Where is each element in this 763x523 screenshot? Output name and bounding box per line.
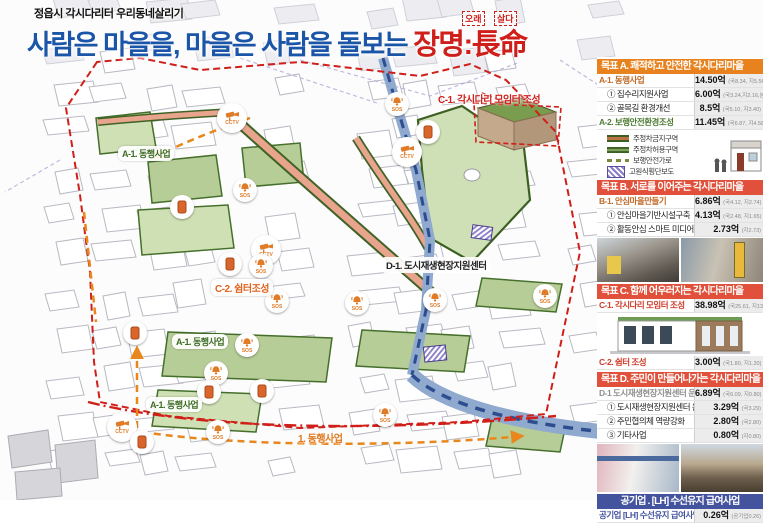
budget-row: A-1. 동행사업 14.50억 (국8.34, 지5.56) [597,74,763,88]
budget-row: ② 활동안심 스마트 미디어월 2.73억 (지2.73) [597,223,763,237]
parking-legend: 주정차금지구역 주정차허용구역 보행안전가로 고원식횡단보도 [607,132,763,178]
map-label: C-2. 쉼터조성 [211,279,273,296]
budget-row: ② 골목길 환경개선 8.5억 (국5.10, 지3.40) [597,102,763,116]
budget-row: ① 집수리지원사업 6.00억 (국3.24,지2.16,본0.60) [597,88,763,102]
map-label: A-1. 동행사업 [146,397,202,412]
budget-row: ① 안심마을기반시설구축 4.13억 (국2.48, 지1.65) [597,209,763,223]
goal-a-header: 목표 A. 쾌적하고 안전한 각시다리마을 [597,59,763,74]
sos-icon: SOS [423,288,447,312]
door-icon [170,195,194,219]
door-icon [250,379,274,403]
poster: 정읍시 각시다리터 우리동네살리기 사람은 마을을, 마을은 사람을 돌보는 장… [0,0,763,500]
annotation-orae: 오래 [462,11,485,26]
sos-icon: SOS [345,291,369,315]
meeting-place-render [597,313,763,356]
street-photo [597,238,679,282]
sos-icon: SOS [373,403,397,427]
budget-row: A-2. 보행안전환경조성 11.45억 (국6.87, 지4.58) [597,116,763,130]
map-label: A-1. 동행사업 [118,146,174,161]
cctv-icon: CCTV [392,137,422,167]
sos-icon: SOS [233,178,257,202]
door-icon [130,430,154,454]
lh-header: 공기업 . [LH] 수선유지 급여사업 [597,494,763,509]
budget-row: 공기업 [LH] 수선유지 급여사업 0.26억 (공기업0.26) [597,509,763,523]
budget-row: D-1 도시재생현장지원센터 운영 6.89억 (국6.09, 지0.80) [597,387,763,401]
goal-b-header: 목표 B. 서로를 이어주는 각시다리마을 [597,180,763,195]
budget-row: ② 주민협의체 역량강화 2.80억 (국2.80) [597,415,763,429]
sos-icon: SOS [385,92,409,116]
alley-photo [681,238,763,282]
goal-c-header: 목표 C. 함께 어우러지는 각시다리마을 [597,284,763,299]
annotation-salda: 살다 [494,11,517,26]
map-label: C-1. 각시다리 모임터 조성 [438,91,540,106]
house-illustration [707,133,763,177]
sos-icon: SOS [206,420,230,444]
title-highlight: 장명:長命 [413,29,527,61]
safe-walkway-swatch [607,159,629,162]
page-title: 사람은 마을을, 마을은 사람을 돌보는 장명:長命 [27,21,527,63]
sos-icon: SOS [249,254,273,278]
center-building-photo [597,444,679,492]
budget-row: C-1. 각시다리 모임터 조성 38.98억 (국25.61, 지13.37) [597,299,763,313]
legend-item: 주정차금지구역 [607,133,707,144]
sos-icon: SOS [533,284,557,308]
goal-b-photos [597,238,763,282]
map-label: 1. 동행사업 [298,430,342,445]
sidebar: 목표 A. 쾌적하고 안전한 각시다리마을 A-1. 동행사업 14.50억 (… [597,57,763,500]
cctv-icon: CCTV [217,103,247,133]
parking-allowed-swatch [607,147,629,153]
document-subtitle: 정읍시 각시다리터 우리동네살리기 [34,5,183,21]
map-label: A-1. 동행사업 [172,334,228,349]
goal-d-photos [597,444,763,492]
legend-item: 고원식횡단보도 [607,166,707,177]
map-label: D-1. 도시재생현장지원센터 [383,257,490,273]
door-icon [416,120,440,144]
budget-row: ③ 기타사업 0.80억 (지0.80) [597,429,763,443]
door-icon [123,321,147,345]
park-structure [464,169,480,181]
door-icon [218,252,242,276]
legend-item: 보행안전가로 [607,155,707,166]
budget-row: C-2. 쉼터 조성 3.00억 (국1.80, 지1.20) [597,356,763,370]
budget-row: ① 도시재생현장지원센터 운영 3.29억 (국3.29) [597,401,763,415]
crosswalk-swatch [607,166,625,178]
sos-icon: SOS [235,333,259,357]
goal-d-header: 목표 D. 주민이 만들어나가는 각시다리마을 [597,372,763,387]
meeting-photo [681,444,763,492]
budget-row: B-1. 안심마을만들기 6.86억 (국4.12, 지2.74) [597,195,763,209]
legend-item: 주정차허용구역 [607,144,707,155]
title-prefix: 사람은 마을을, 마을은 사람을 돌보는 [27,30,413,60]
no-parking-swatch [607,135,629,142]
